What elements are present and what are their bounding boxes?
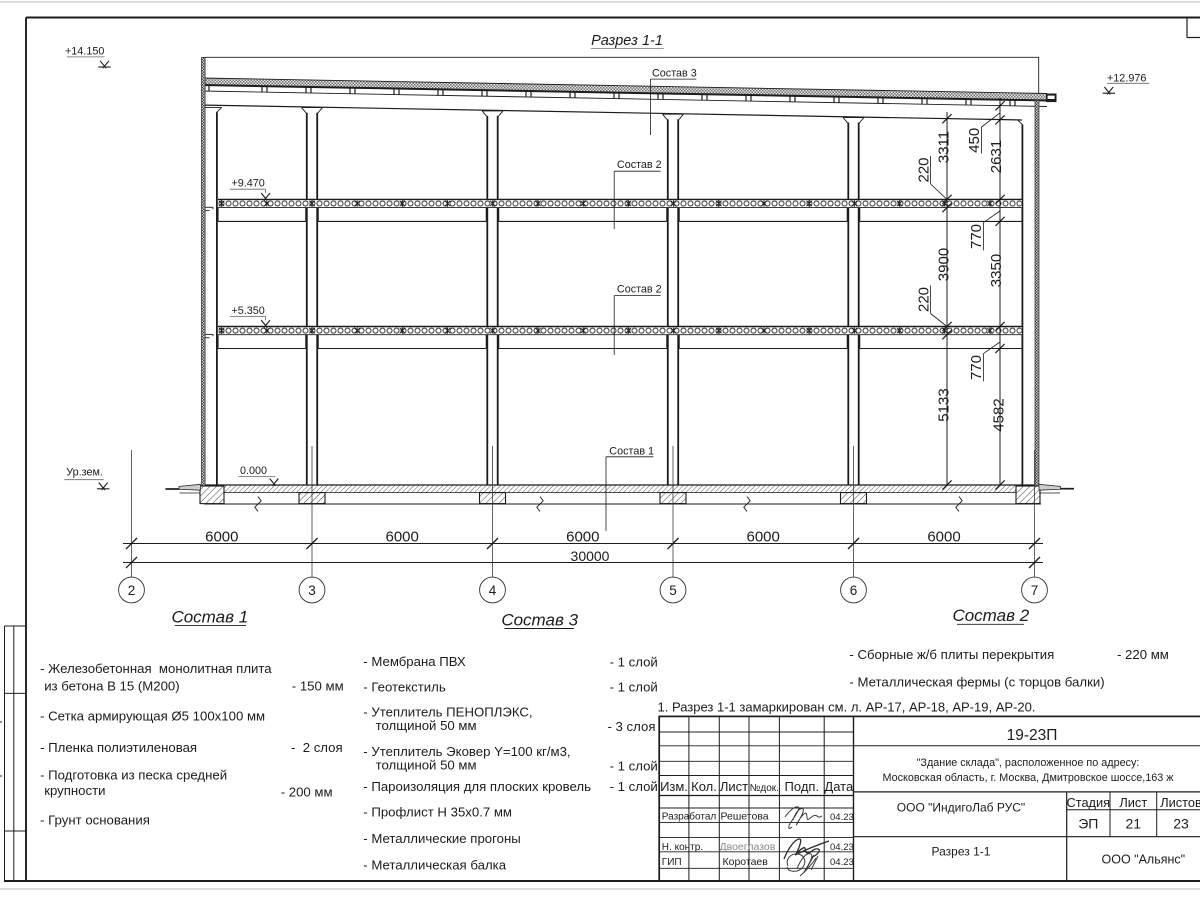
svg-text:Состав 2: Состав 2 bbox=[617, 284, 662, 296]
svg-text:Разработал: Разработал bbox=[662, 810, 717, 822]
svg-text:из бетона В 15 (М200): из бетона В 15 (М200) bbox=[44, 679, 179, 694]
svg-text:770: 770 bbox=[968, 355, 985, 380]
svg-text:Состав 1: Состав 1 bbox=[171, 607, 248, 626]
svg-text:23: 23 bbox=[1173, 815, 1189, 831]
svg-text:Состав 1: Состав 1 bbox=[609, 445, 654, 457]
svg-text:4: 4 bbox=[489, 583, 497, 598]
svg-text:5133: 5133 bbox=[936, 388, 953, 421]
svg-text:6000: 6000 bbox=[566, 528, 599, 545]
svg-text:+12.976: +12.976 bbox=[1107, 72, 1146, 84]
svg-text:6000: 6000 bbox=[927, 528, 960, 545]
svg-text:+5.350: +5.350 bbox=[231, 305, 264, 317]
svg-text:2631: 2631 bbox=[988, 140, 1005, 173]
svg-text:- Геотекстиль: - Геотекстиль bbox=[363, 680, 446, 695]
svg-text:19-23П: 19-23П bbox=[1007, 727, 1058, 744]
svg-text:04.23: 04.23 bbox=[830, 812, 854, 823]
svg-text:3311: 3311 bbox=[936, 131, 953, 163]
svg-text:04.23: 04.23 bbox=[830, 842, 854, 853]
svg-text:Стадия: Стадия bbox=[1066, 795, 1110, 810]
svg-text:- Пленка полиэтиленовая: - Пленка полиэтиленовая bbox=[40, 740, 197, 755]
svg-text:Кол.: Кол. bbox=[691, 779, 717, 794]
svg-text:220: 220 bbox=[916, 287, 933, 312]
svg-text:- Металлическая фермы (с торцо: - Металлическая фермы (с торцов балки) bbox=[849, 675, 1104, 690]
svg-text:Состав 3: Состав 3 bbox=[501, 610, 578, 629]
svg-text:- 1 слой: - 1 слой bbox=[610, 654, 658, 669]
svg-text:Лист: Лист bbox=[1119, 795, 1147, 810]
svg-text:толщиной 50 мм: толщиной 50 мм bbox=[376, 757, 477, 772]
svg-text:- 200 мм: - 200 мм bbox=[281, 784, 333, 799]
svg-text:2: 2 bbox=[128, 583, 136, 598]
svg-text:220: 220 bbox=[916, 157, 933, 182]
svg-text:770: 770 bbox=[968, 224, 985, 249]
svg-text:1. Разрез 1-1 замаркирован см.: 1. Разрез 1-1 замаркирован см. л. АР-17,… bbox=[658, 700, 1036, 715]
svg-text:Лист: Лист bbox=[720, 779, 748, 794]
svg-text:0.000: 0.000 bbox=[240, 465, 267, 477]
svg-text:Коротаев: Коротаев bbox=[723, 856, 769, 868]
svg-text:450: 450 bbox=[966, 128, 983, 153]
svg-text:3350: 3350 bbox=[988, 254, 1005, 287]
svg-text:+14.150: +14.150 bbox=[65, 46, 104, 58]
svg-text:- 150 мм: - 150 мм bbox=[292, 679, 344, 694]
svg-text:30000: 30000 bbox=[571, 548, 610, 564]
svg-text:7: 7 bbox=[1031, 583, 1039, 598]
svg-text:- 1 слой: - 1 слой bbox=[610, 680, 658, 695]
svg-text:толщиной 50 мм: толщиной 50 мм bbox=[376, 718, 477, 733]
svg-text:Двоеглазов: Двоеглазов bbox=[720, 841, 776, 853]
svg-text:- Сетка армирующая Ø5 100х100: - Сетка армирующая Ø5 100х100 мм bbox=[40, 709, 265, 724]
svg-text:ГИП: ГИП bbox=[662, 857, 682, 868]
svg-text:Разрез 1-1: Разрез 1-1 bbox=[932, 844, 991, 858]
svg-text:3900: 3900 bbox=[936, 248, 953, 281]
svg-text:- 220 мм: - 220 мм bbox=[1117, 647, 1169, 662]
svg-text:Изм.: Изм. bbox=[660, 779, 688, 794]
svg-text:крупности: крупности bbox=[44, 783, 105, 798]
svg-text:Московская область, г. Москва,: Московская область, г. Москва, Дмитровск… bbox=[883, 772, 1175, 784]
svg-text:- 1 слой: - 1 слой bbox=[610, 758, 658, 773]
svg-text:- Подготовка из песка средней: - Подготовка из песка средней bbox=[40, 768, 227, 783]
svg-text:+9.470: +9.470 bbox=[231, 178, 264, 190]
svg-text:- Сборные ж/б плиты перекрытия: - Сборные ж/б плиты перекрытия bbox=[849, 647, 1054, 662]
svg-text:- 1 слой: - 1 слой bbox=[610, 779, 658, 794]
svg-text:Ур.зем.: Ур.зем. bbox=[66, 467, 103, 479]
svg-text:- 3 слоя: - 3 слоя bbox=[608, 719, 656, 734]
svg-text:Состав 3: Состав 3 bbox=[652, 68, 697, 80]
svg-text:ЭП: ЭП bbox=[1078, 815, 1098, 831]
svg-text:- Металлические прогоны: - Металлические прогоны bbox=[363, 831, 520, 846]
svg-text:"Здание склада", расположенное: "Здание склада", расположенное по адресу… bbox=[917, 757, 1140, 769]
svg-text:ООО "Альянс": ООО "Альянс" bbox=[1102, 852, 1186, 866]
svg-text:21: 21 bbox=[1126, 815, 1142, 831]
svg-text:6000: 6000 bbox=[747, 528, 780, 545]
svg-text:- Мембрана ПВХ: - Мембрана ПВХ bbox=[363, 654, 466, 669]
svg-text:04.23: 04.23 bbox=[830, 857, 854, 868]
svg-text:Разрез 1-1: Разрез 1-1 bbox=[591, 33, 663, 49]
svg-text:- Железобетонная монолитная п: - Железобетонная монолитная плита bbox=[40, 661, 272, 676]
svg-text:- Грунт основания: - Грунт основания bbox=[40, 812, 150, 827]
svg-text:6: 6 bbox=[850, 583, 858, 598]
svg-text:- Профлист Н 35х0.7 мм: - Профлист Н 35х0.7 мм bbox=[363, 804, 512, 819]
svg-text:Н. контр.: Н. контр. bbox=[662, 842, 703, 853]
svg-text:Дата: Дата bbox=[824, 779, 854, 794]
svg-text:- Металлическая балка: - Металлическая балка bbox=[363, 858, 506, 873]
svg-text:- 2 слоя: - 2 слоя bbox=[291, 740, 343, 755]
svg-text:Листов: Листов bbox=[1160, 795, 1200, 810]
svg-text:№док.: №док. bbox=[750, 783, 779, 794]
svg-text:Состав 2: Состав 2 bbox=[617, 159, 662, 171]
svg-text:5: 5 bbox=[669, 583, 677, 598]
svg-text:Подп.: Подп. bbox=[785, 779, 820, 794]
svg-text:ООО "ИндигоЛаб РУС": ООО "ИндигоЛаб РУС" bbox=[897, 800, 1025, 814]
svg-text:3: 3 bbox=[308, 583, 316, 598]
svg-text:6000: 6000 bbox=[205, 528, 238, 545]
svg-text:Состав 2: Состав 2 bbox=[952, 606, 1029, 625]
svg-text:4582: 4582 bbox=[991, 398, 1008, 431]
svg-text:Решетова: Решетова bbox=[721, 810, 769, 822]
svg-text:6000: 6000 bbox=[386, 528, 419, 545]
svg-text:- Пароизоляция для плоских кро: - Пароизоляция для плоских кровель bbox=[363, 779, 591, 794]
